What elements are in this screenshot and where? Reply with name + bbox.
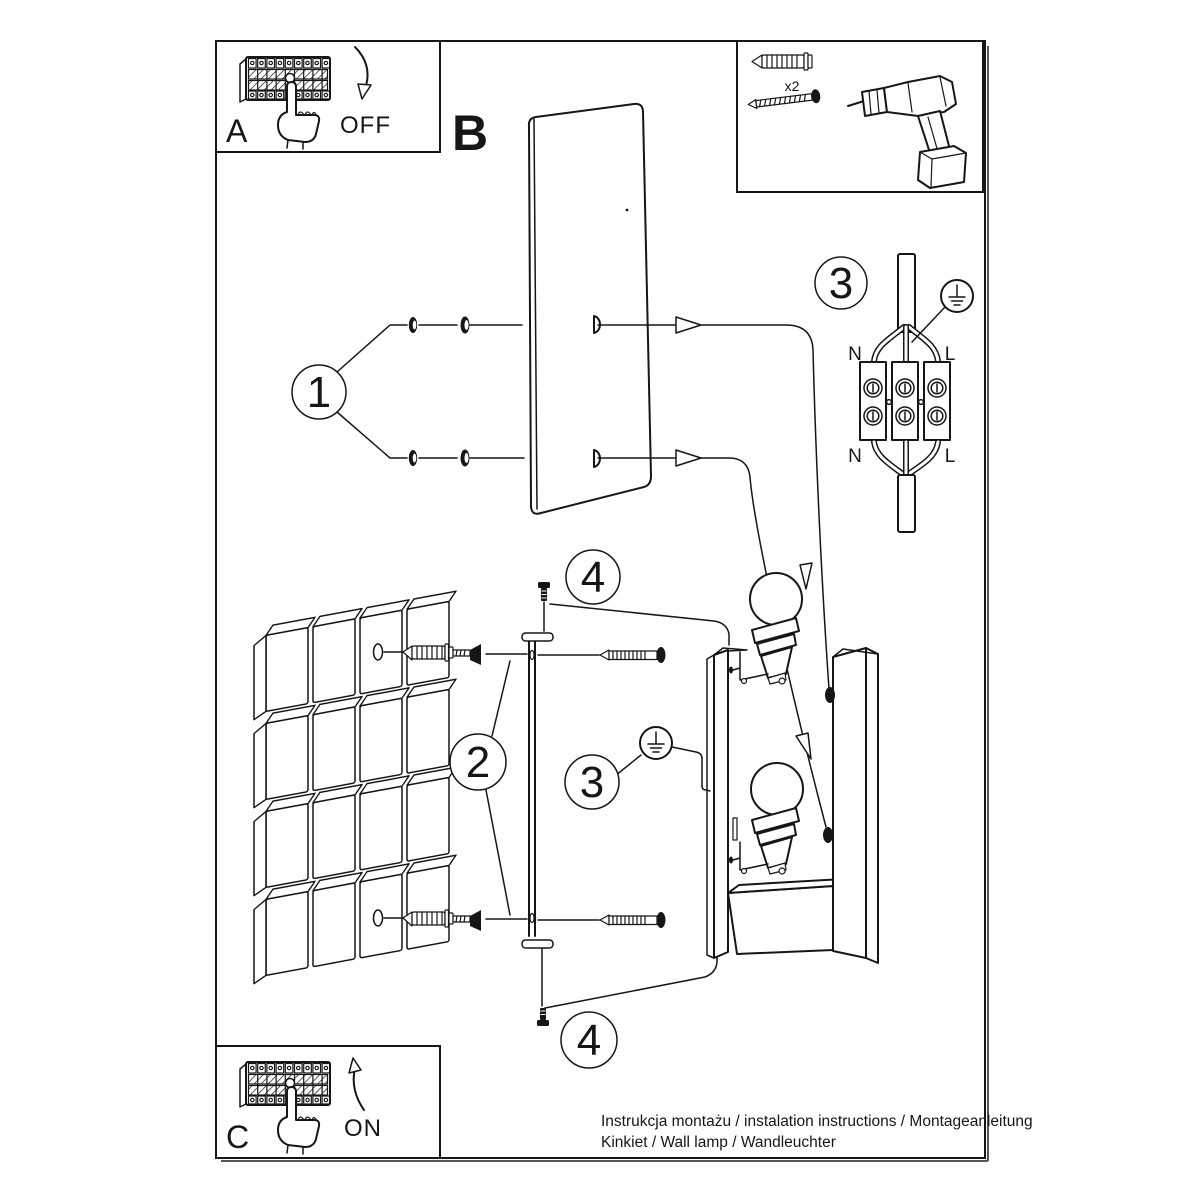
supply-cable-top [898, 254, 915, 332]
cover-plate [529, 104, 651, 514]
live-label-bottom: L [945, 446, 956, 467]
step-1-number: 1 [307, 368, 331, 417]
wall-hole-bottom [374, 910, 383, 926]
step-3-number: 3 [829, 259, 853, 308]
step-2-number: 2 [466, 738, 490, 787]
step-c-power-on: C ON [216, 1046, 440, 1158]
box-c-label: C [226, 1119, 249, 1155]
supply-cable-bottom [898, 475, 915, 532]
neutral-label-bottom: N [848, 446, 862, 467]
mounting-pin-bottom [823, 827, 833, 843]
mounting-pin-top [825, 687, 835, 703]
anchor-quantity: x2 [785, 78, 800, 94]
step-4-number-bottom: 4 [577, 1016, 601, 1065]
on-label: ON [344, 1115, 382, 1142]
footer-line-1: Instrukcja montażu / instalation instruc… [601, 1113, 1033, 1130]
terminal-block [860, 362, 950, 440]
step-a-power-off: A OFF [216, 41, 440, 152]
step-3-number-mid: 3 [580, 758, 604, 807]
box-a-label: A [226, 113, 248, 149]
wall-anchor-icon [752, 53, 812, 70]
tools-box: x2 [737, 41, 983, 192]
section-label-b: B [452, 105, 488, 161]
instruction-sheet: B 1 A O [0, 0, 1200, 1200]
assembly-diagram: B 1 A O [0, 0, 1200, 1200]
footer-line-2: Kinkiet / Wall lamp / Wandleuchter [601, 1134, 836, 1151]
off-label: OFF [340, 112, 391, 139]
step-4-number-top: 4 [581, 553, 605, 602]
wall-hole-top [374, 644, 383, 660]
